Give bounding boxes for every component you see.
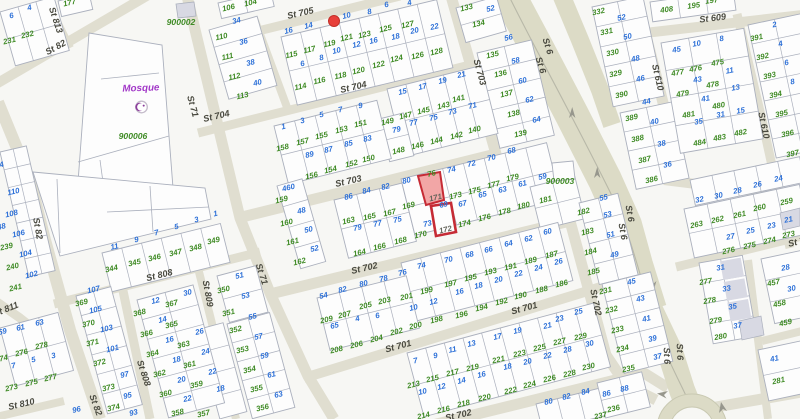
svg-text:900002: 900002 [167, 17, 196, 27]
svg-text:St 6: St 6 [662, 347, 673, 365]
svg-text:41: 41 [700, 93, 711, 104]
svg-text:900006: 900006 [119, 131, 148, 141]
svg-text:Mosque: Mosque [122, 82, 160, 94]
svg-text:900003: 900003 [546, 176, 575, 186]
svg-text:11: 11 [725, 65, 734, 75]
svg-text:St 6: St 6 [675, 343, 686, 361]
svg-text:31: 31 [716, 109, 726, 119]
svg-text:31: 31 [716, 262, 726, 272]
svg-text:195: 195 [687, 0, 702, 11]
